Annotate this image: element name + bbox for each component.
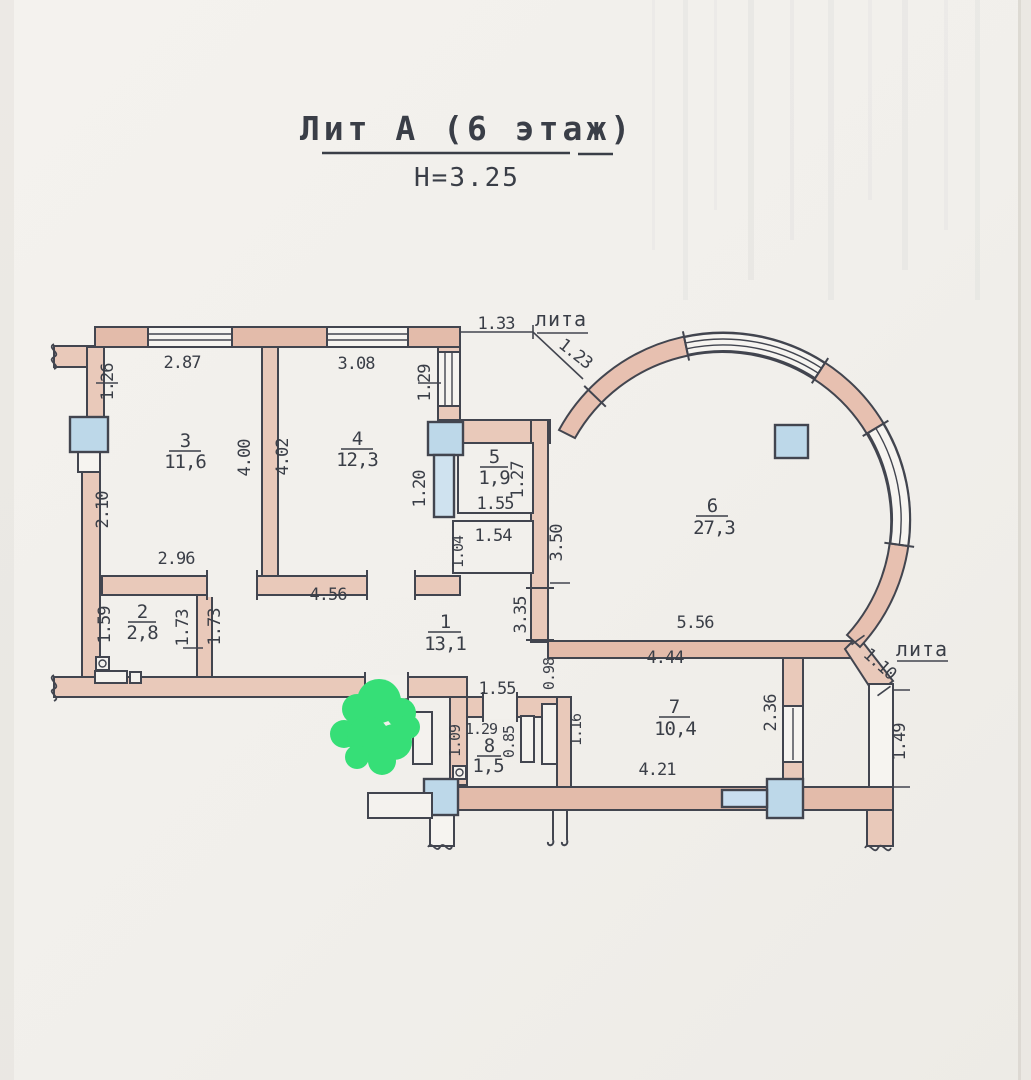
lita-right-label: лита — [896, 637, 948, 661]
paper-left-shadow — [0, 0, 14, 1080]
window-room4 — [327, 327, 408, 347]
room-6-number: 6 — [707, 495, 718, 517]
room-7-number: 7 — [669, 696, 680, 718]
fixture-duct-b — [542, 704, 557, 764]
lita-top-label: лита — [535, 307, 587, 331]
column-bottom-right — [767, 779, 803, 818]
dim-label: 2.96 — [158, 549, 196, 569]
dim-label: 1.27 — [508, 462, 528, 499]
window-bottom-wall — [722, 790, 767, 807]
column-center-lower — [434, 455, 454, 517]
room-6-area: 27,3 — [693, 517, 735, 539]
dim-label: 4.56 — [310, 585, 348, 605]
wall-stub-under-column — [78, 452, 100, 472]
dim-label: 2.10 — [93, 491, 113, 529]
dim-label: 1.04 — [449, 535, 467, 568]
dim-label: 1.16 — [567, 713, 585, 746]
room-5-area: 1,9 — [478, 467, 510, 489]
wall-bottom-right-stub — [867, 810, 893, 846]
dim-label: 1.73 — [205, 609, 225, 646]
dim-label: 1.26 — [98, 363, 118, 401]
paper-right-margin — [1021, 0, 1031, 1080]
window-right-wall — [438, 352, 460, 406]
dim-label: 4.21 — [639, 760, 677, 780]
dim-label: 1.73 — [173, 610, 193, 647]
scanned-floor-plan-page: Лит А (6 этаж) Н=3.25 лита лита 3 11,6 4… — [0, 0, 1031, 1080]
fixture-drain-room8 — [453, 766, 466, 779]
dim-label: 1.20 — [410, 470, 430, 508]
dim-label: 2.36 — [761, 694, 781, 732]
room-4-number: 4 — [352, 428, 363, 450]
window-room3 — [148, 327, 232, 347]
dim-label: 2.87 — [164, 353, 201, 373]
room-4-area: 12,3 — [336, 449, 378, 471]
plan-height-label: Н=3.25 — [414, 163, 520, 193]
dim-label: 4.02 — [273, 439, 293, 476]
fixture-duct-a — [521, 716, 534, 762]
paper-right-edge — [1018, 0, 1021, 1080]
fixture-room2-b — [130, 672, 141, 683]
dim-label: 4.44 — [647, 648, 685, 668]
room-1-area: 13,1 — [424, 633, 466, 655]
room-2-number: 2 — [137, 601, 147, 623]
dim-label: 1.54 — [475, 526, 513, 546]
wall-door-to-room8 — [408, 677, 467, 697]
dim-label: 1.49 — [890, 723, 910, 761]
dim-label: 3.50 — [547, 524, 567, 562]
room-3-number: 3 — [180, 430, 191, 452]
dim-label: 1.55 — [479, 679, 516, 699]
dim-label: 4.00 — [235, 439, 255, 477]
wall-bottom-exterior — [457, 787, 893, 810]
dim-label: 1.33 — [478, 314, 515, 334]
dim-label: 1.29 — [415, 364, 435, 402]
dim-label: 0.98 — [540, 657, 558, 690]
dim-label: 0.85 — [500, 726, 518, 758]
dim-label: 3.08 — [338, 354, 376, 374]
dim-label: 1.29 — [465, 720, 498, 738]
room-7-area: 10,4 — [654, 718, 696, 740]
room-1-number: 1 — [440, 611, 451, 633]
room-2-area: 2,8 — [126, 622, 158, 644]
column-left — [70, 417, 108, 452]
dim-label: 1.09 — [446, 724, 464, 757]
wall-left-mid — [82, 452, 100, 679]
room-3-area: 11,6 — [164, 451, 206, 473]
room-8-number: 8 — [484, 735, 495, 757]
dim-label: 5.56 — [677, 613, 715, 633]
fixture-vestibule — [368, 793, 432, 818]
floor-plan-svg: Лит А (6 этаж) Н=3.25 лита лита 3 11,6 4… — [0, 0, 1031, 1080]
dim-label: 3.35 — [511, 597, 531, 634]
wall-bottom-left-stub — [430, 815, 454, 846]
fixture-drain-room2 — [96, 657, 109, 670]
room-5-number: 5 — [489, 446, 499, 468]
wall-room6-bottom — [548, 641, 862, 658]
column-center-top — [428, 422, 463, 455]
dim-label: 1.59 — [95, 606, 115, 644]
fixture-room2-a — [95, 671, 127, 683]
plan-title: Лит А (6 этаж) — [300, 109, 634, 148]
column-room6 — [775, 425, 808, 458]
room-8-area: 1,5 — [472, 755, 503, 777]
